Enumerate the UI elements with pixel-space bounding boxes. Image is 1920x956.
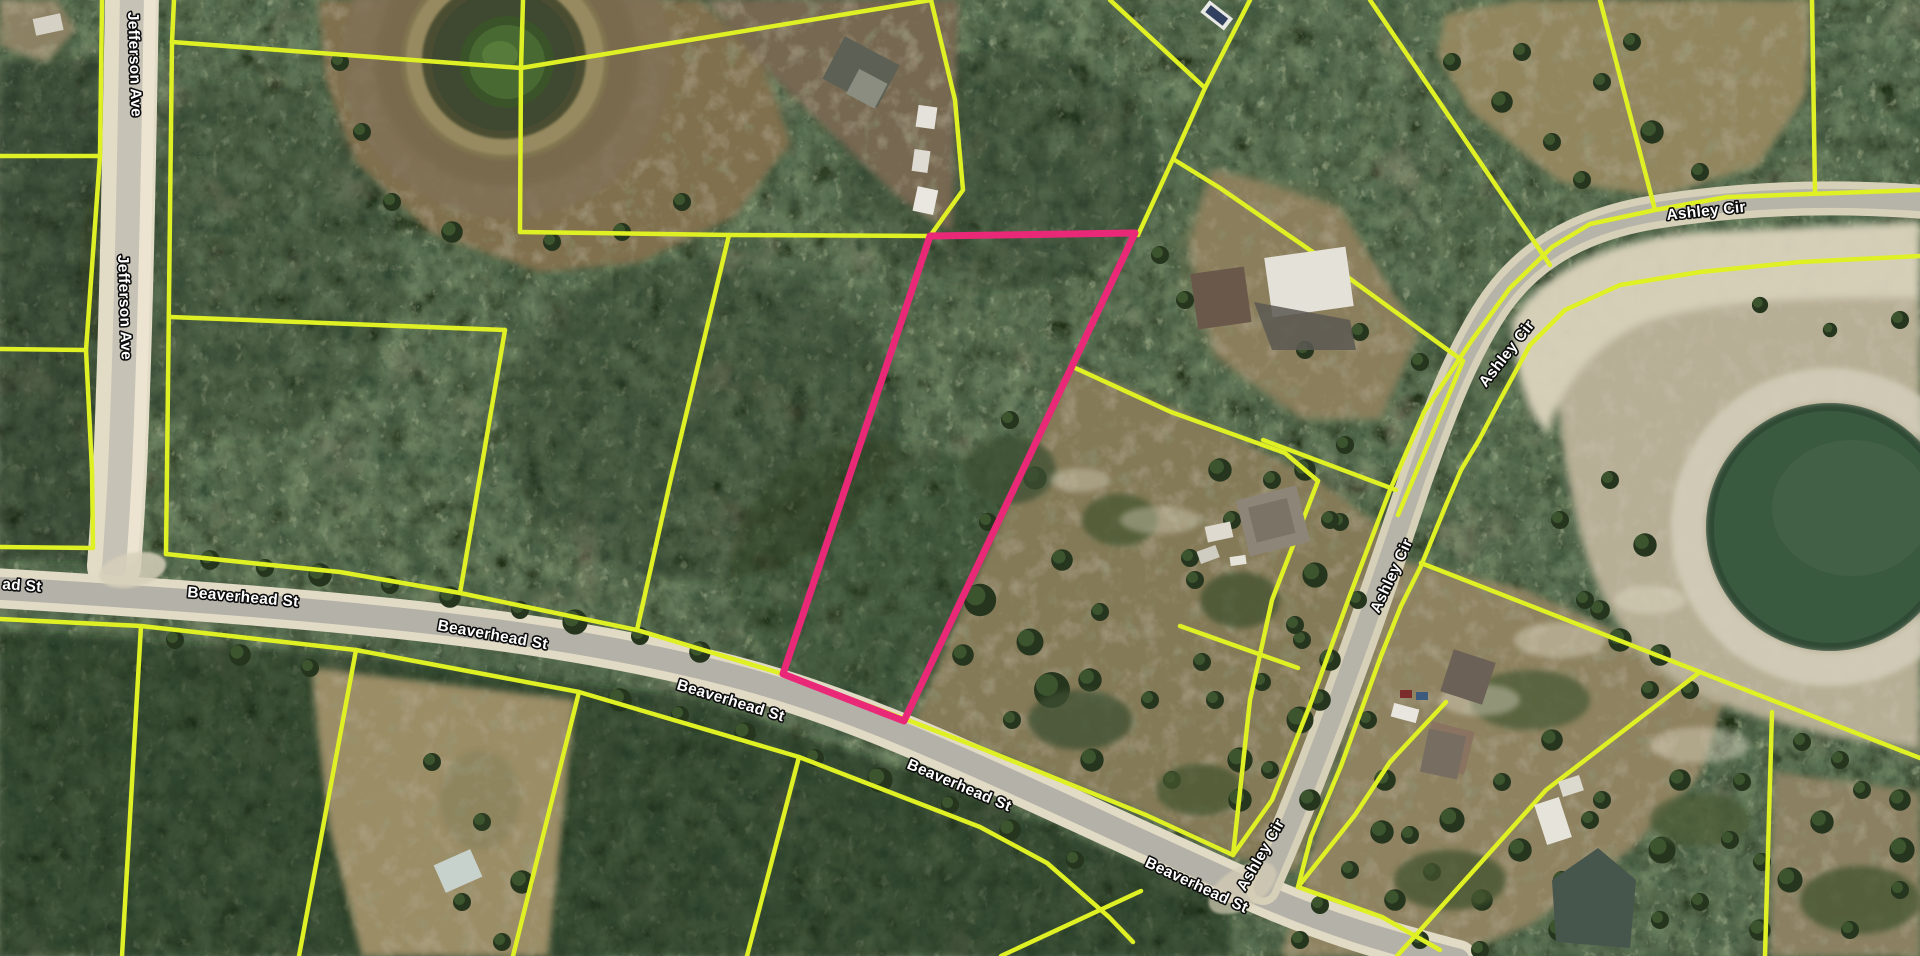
svg-text:ad St: ad St	[2, 576, 42, 596]
